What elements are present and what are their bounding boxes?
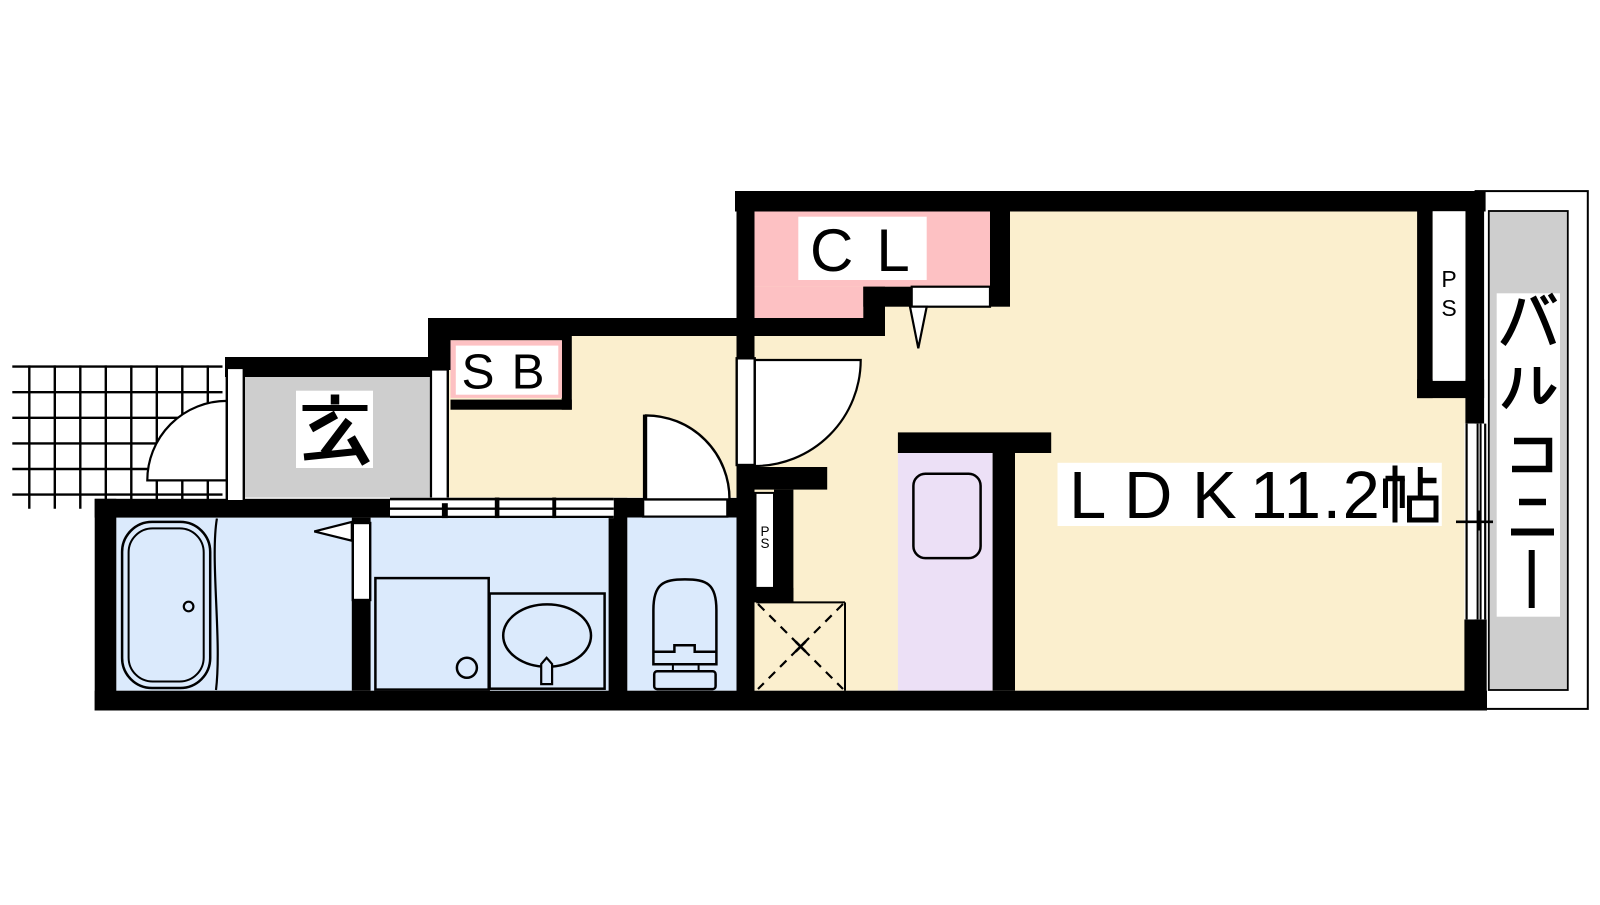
svg-text:SB: SB [462, 345, 562, 400]
svg-text:K: K [1192, 458, 1237, 533]
svg-text:CL: CL [810, 217, 933, 284]
svg-text:L: L [1069, 458, 1106, 533]
svg-text:S: S [760, 536, 769, 551]
svg-text:11.2: 11.2 [1250, 458, 1381, 533]
svg-text:D: D [1124, 458, 1172, 533]
svg-text:S: S [1441, 295, 1456, 321]
svg-text:P: P [1441, 266, 1456, 292]
